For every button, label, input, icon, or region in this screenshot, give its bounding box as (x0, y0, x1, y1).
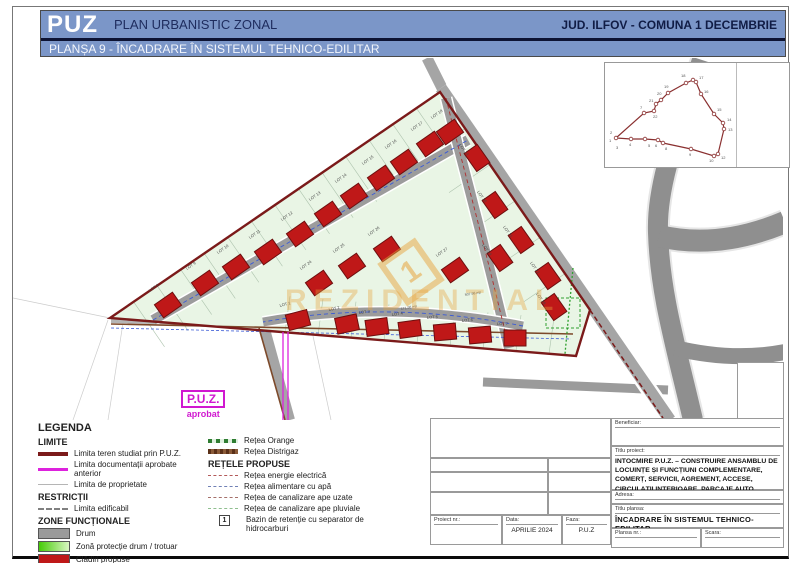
swatch-retea-electrica (208, 475, 238, 476)
inset-vertex (712, 112, 716, 116)
data-value: APRILIE 2024 (503, 525, 561, 534)
swatch-limita-doc (38, 468, 68, 471)
legend-restrictii-title: RESTRICȚII (38, 492, 203, 502)
inset-vertex-number: 13 (728, 127, 733, 132)
legend-label: Drum (76, 529, 96, 538)
inset-vertex-number: 16 (704, 89, 709, 94)
legend-label: Rețea de canalizare ape pluviale (244, 504, 360, 513)
titleblock-sign-cell (548, 458, 611, 472)
puz-logo: PUZ (47, 12, 98, 38)
inset-vertex (666, 91, 670, 95)
titleblock-plansa-nr: Plansa nr.: (611, 528, 701, 548)
building-proposed (398, 320, 422, 339)
swatch-retea-orange (208, 439, 238, 443)
puz-aprobat-line2: aprobat (181, 409, 225, 419)
inset-vertex-number: 22 (653, 114, 658, 119)
header-region: JUD. ILFOV - COMUNA 1 DECEMBRIE (561, 18, 777, 32)
inset-vertex-number: 5 (648, 143, 651, 148)
header: PUZ PLAN URBANISTIC ZONAL JUD. ILFOV - C… (40, 10, 786, 57)
legend-retele-title: REȚELE PROPUSE (208, 459, 423, 469)
building-proposed (433, 323, 456, 341)
legend-label: Bazin de retenție cu separator de hidroc… (246, 515, 396, 533)
inset-divider (736, 63, 737, 167)
titleblock-sign-row (430, 472, 548, 492)
inset-vertex-number: 15 (717, 107, 722, 112)
beneficiar-label: Beneficiar: (612, 419, 783, 426)
swatch-zona-protectie (38, 541, 70, 552)
legend-label: Rețea de canalizare ape uzate (244, 493, 353, 502)
titleblock-spare-box (737, 362, 784, 419)
adresa-label: Adresa: (612, 491, 783, 498)
swatch-retea-distrigaz (208, 449, 238, 454)
titleblock-titlu-proiect: Titlu proiect: INTOCMIRE P.U.Z. – CONSTR… (611, 446, 784, 490)
header-subtitle: PLAN URBANISTIC ZONAL (114, 17, 277, 32)
legend-label: Limita de proprietate (74, 480, 147, 489)
inset-vertex (716, 152, 720, 156)
inset-vertex-number: 14 (727, 117, 732, 122)
building-proposed (504, 330, 526, 346)
legend-label: Rețea Distrigaz (244, 447, 299, 456)
legend-title: LEGENDA (38, 422, 203, 434)
puz-aprobat-note: P.U.Z. aprobat (181, 390, 225, 419)
inset-vertex-number: 18 (681, 73, 686, 78)
building-proposed (365, 318, 389, 337)
inset-vertex (652, 109, 656, 113)
inset-vertex-number: 7 (640, 105, 643, 110)
swatch-limita-proprietate (38, 484, 68, 485)
inset-vertex-number: 4 (629, 142, 632, 147)
inset-vertex (659, 98, 663, 102)
inset-vertex (661, 141, 665, 145)
inset-vertex-number: 2 (610, 130, 613, 135)
plansa-nr-label: Plansa nr.: (612, 529, 700, 536)
location-inset: 123456789101213141516171819202122 (604, 62, 790, 168)
data-label: Data: (503, 516, 561, 523)
swatch-retea-apa (208, 486, 238, 487)
puz-aprobat-line1: P.U.Z. (181, 390, 225, 408)
titleblock-sign-cell (548, 472, 611, 492)
titleblock-sign-row (430, 492, 548, 515)
inset-vertex (656, 138, 660, 142)
titlu-plansa-label: Titlu plansa: (612, 505, 783, 512)
faza-label: Faza: (563, 516, 610, 523)
inset-vertex (643, 137, 647, 141)
inset-vertex-number: 19 (664, 84, 669, 89)
legend-zone-title: ZONE FUNCȚIONALE (38, 516, 203, 526)
inset-polygon-map: 123456789101213141516171819202122 (605, 63, 789, 167)
legend-label: Rețea energie electrică (244, 471, 326, 480)
plan-sheet: PUZ PLAN URBANISTIC ZONAL JUD. ILFOV - C… (0, 0, 796, 563)
legend-label: Limita edificabil (74, 504, 129, 513)
titlu-proiect-label: Titlu proiect: (612, 447, 783, 454)
legend: LEGENDA LIMITE Limita teren studiat prin… (30, 420, 430, 554)
inset-vertex-number: 10 (709, 158, 714, 163)
swatch-canalizare-pluviale (208, 508, 238, 509)
inset-vertex-number: 12 (721, 155, 726, 160)
titleblock-titlu-plansa: Titlu plansa: ÎNCADRARE ÎN SISTEMUL TEHN… (611, 504, 784, 528)
inset-vertex (722, 127, 726, 131)
inset-vertex (654, 102, 658, 106)
building-proposed (468, 326, 491, 344)
titleblock-sign-row (430, 458, 548, 472)
inset-vertex (694, 80, 698, 84)
inset-vertex (721, 121, 725, 125)
swatch-limita-edificabil (38, 508, 68, 510)
swatch-drum (38, 528, 70, 539)
inset-vertex (629, 137, 633, 141)
inset-vertex-number: 1 (609, 138, 612, 143)
legend-limite-title: LIMITE (38, 437, 203, 447)
swatch-cladiri-propuse (38, 554, 70, 563)
titleblock-proiect-nr: Proiect nr.: (430, 515, 502, 545)
inset-vertex-number: 9 (689, 152, 692, 157)
legend-label: Limita documentații aprobate anterior (74, 460, 203, 478)
legend-label: Zonă protecție drum / trotuar (76, 542, 177, 551)
inset-vertex (689, 147, 693, 151)
inset-vertex (642, 111, 646, 115)
faza-value: P.U.Z (563, 525, 610, 534)
titleblock-stamp-box (430, 418, 611, 458)
lot-label: LOT 7 (497, 321, 509, 326)
inset-vertex-number: 8 (665, 146, 668, 151)
swatch-limita-puz (38, 452, 68, 456)
swatch-canalizare-uzate (208, 497, 238, 498)
titleblock-adresa: Adresa: (611, 490, 784, 504)
proiect-nr-label: Proiect nr.: (431, 516, 501, 523)
titleblock-sign-cell (548, 492, 611, 515)
inset-vertex-number: 6 (655, 143, 658, 148)
titleblock-faza: Faza: P.U.Z (562, 515, 611, 545)
titleblock-data: Data: APRILIE 2024 (502, 515, 562, 545)
plansa-title: PLANȘA 9 - ÎNCADRARE ÎN SISTEMUL TEHNICO… (41, 41, 785, 58)
inset-vertex-number: 3 (616, 145, 619, 150)
inset-vertex (699, 92, 703, 96)
titleblock-beneficiar: Beneficiar: (611, 418, 784, 446)
legend-label: Clădiri propuse (76, 555, 130, 563)
inset-vertex-number: 21 (649, 98, 654, 103)
scara-label: Scara: (702, 529, 783, 536)
legend-label: Rețea alimentare cu apă (244, 482, 331, 491)
inset-vertex-number: 20 (657, 91, 662, 96)
titleblock-scara: Scara: (701, 528, 784, 548)
inset-vertex (614, 136, 618, 140)
inset-vertex (684, 81, 688, 85)
legend-label: Rețea Orange (244, 436, 294, 445)
inset-vertex-number: 17 (699, 75, 704, 80)
legend-label: Limita teren studiat prin P.U.Z. (74, 449, 181, 458)
bazin-badge: 1 (219, 515, 230, 526)
